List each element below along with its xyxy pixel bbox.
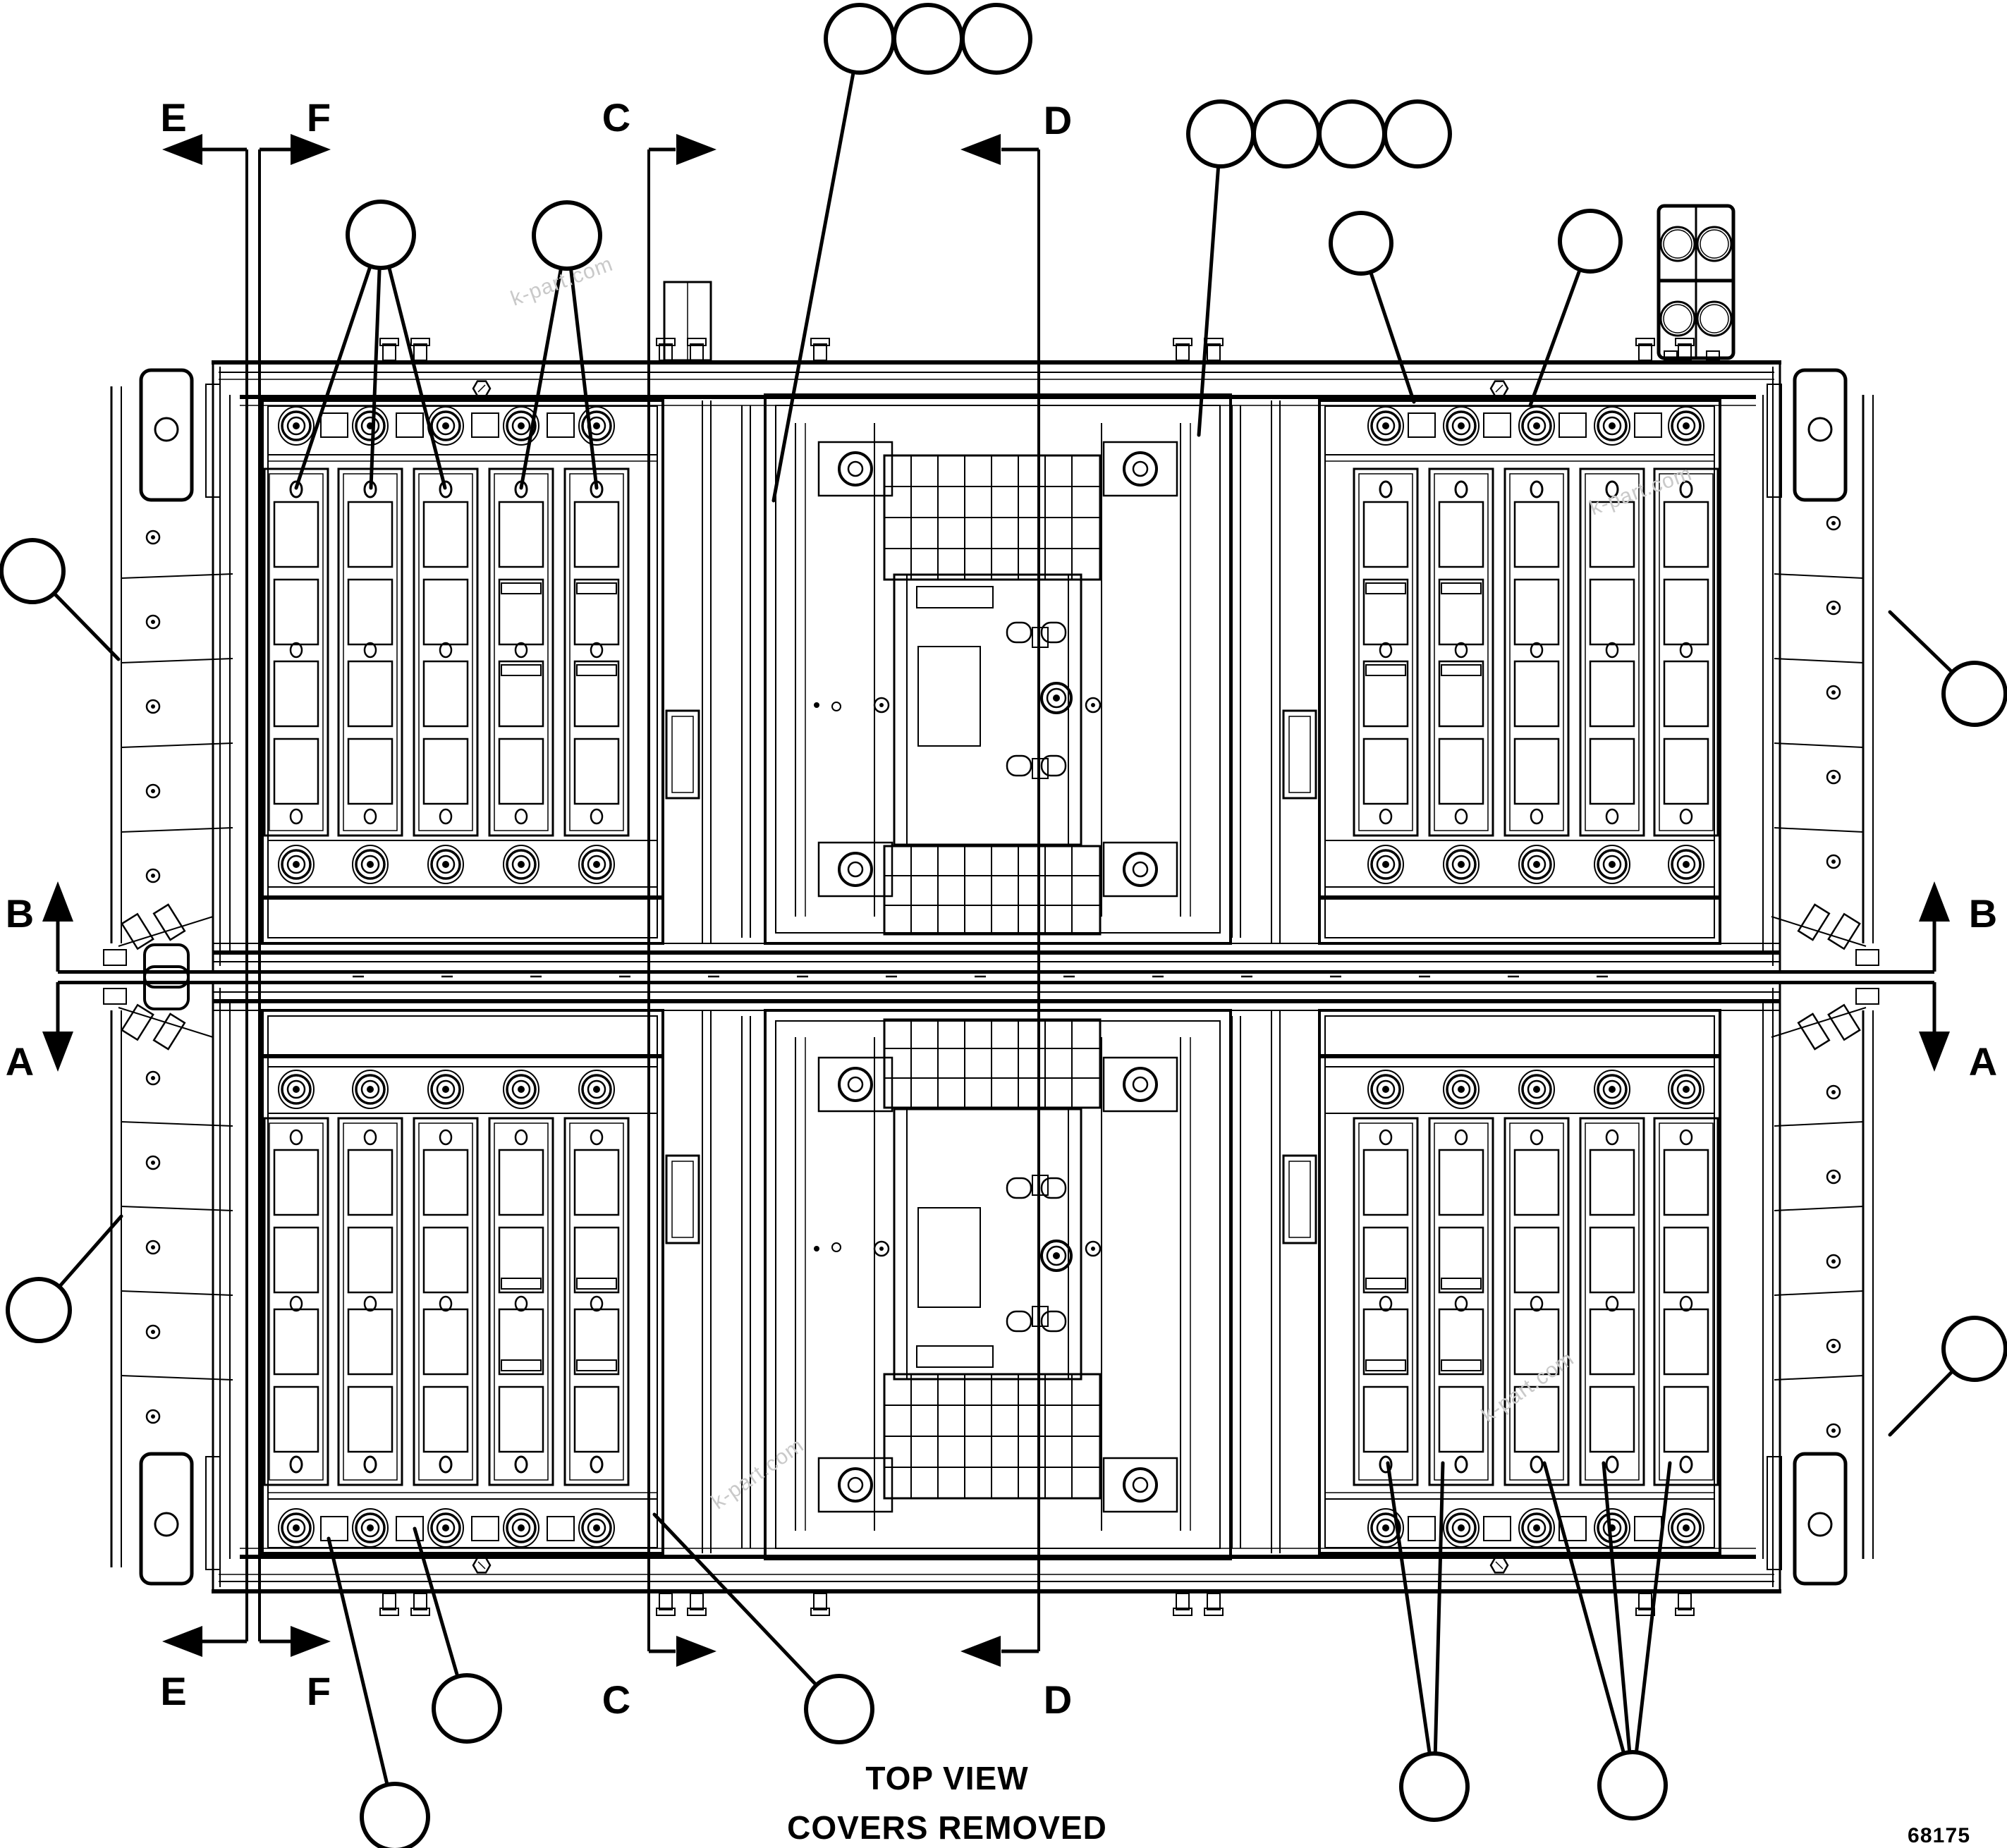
callout-balloon: [826, 5, 893, 73]
callout-balloon: [806, 1676, 872, 1742]
arrow-d-bottom: [960, 1636, 1001, 1667]
callout-balloon: [963, 5, 1030, 73]
section-label-a-left: A: [6, 1039, 34, 1084]
arrow-e-bottom: [162, 1626, 202, 1657]
callout-balloon: [362, 1784, 428, 1848]
lower-half: [104, 967, 1879, 1615]
section-label-f-top: F: [307, 95, 331, 140]
callout-balloon: [1385, 102, 1450, 166]
section-label-f-bottom: F: [307, 1669, 331, 1713]
callout-balloon: [1319, 102, 1384, 166]
section-label-e-top: E: [160, 95, 186, 140]
callout-balloon: [1599, 1752, 1666, 1818]
section-label-e-bottom: E: [160, 1669, 186, 1713]
diagram-canvas: E F C D E F C D B A B A: [0, 0, 2007, 1848]
arrow-c-bottom: [676, 1636, 716, 1667]
section-label-b-right: B: [1969, 891, 1997, 936]
callout-balloon: [1944, 1318, 2006, 1380]
genset-top-view: [104, 206, 1879, 1615]
watermark: k-part.com: [707, 1433, 808, 1514]
callout-balloon: [1, 540, 63, 602]
callout-balloon: [348, 202, 414, 268]
upper-half: [104, 338, 1879, 987]
callout-balloon: [1254, 102, 1319, 166]
callout-balloon: [8, 1279, 70, 1341]
callout-balloon: [434, 1675, 500, 1742]
exhaust-outlet-tower: [1659, 206, 1733, 360]
watermark: k-part.com: [1587, 462, 1695, 520]
arrow-b-left: [42, 881, 73, 922]
callout-balloon: [1560, 211, 1621, 271]
section-markers: E F C D E F C D B A B A: [6, 95, 1997, 1722]
match-line-b: [58, 970, 1934, 974]
callout-balloon: [1331, 213, 1391, 274]
section-label-d-top: D: [1044, 98, 1072, 142]
arrow-a-right: [1919, 1032, 1950, 1072]
section-label-c-bottom: C: [602, 1677, 630, 1722]
arrow-c-top: [676, 134, 716, 165]
match-line-a: [58, 981, 1934, 984]
diagram-page: E F C D E F C D B A B A: [0, 0, 2007, 1848]
view-subtitle: COVERS REMOVED: [787, 1809, 1107, 1846]
arrow-f-bottom: [291, 1626, 331, 1657]
view-title: TOP VIEW: [865, 1760, 1028, 1797]
section-label-d-bottom: D: [1044, 1677, 1072, 1722]
arrow-d-top: [960, 134, 1001, 165]
arrow-a-left: [42, 1032, 73, 1072]
section-label-a-right: A: [1969, 1039, 1997, 1084]
arrow-b-right: [1919, 881, 1950, 922]
callout-balloon: [1401, 1754, 1468, 1820]
callout-balloon: [894, 5, 962, 73]
callout-balloon: [1944, 663, 2006, 725]
callout-balloon: [1188, 102, 1253, 166]
drawing-number: 68175: [1908, 1824, 1969, 1847]
section-label-c-top: C: [602, 95, 630, 140]
section-label-b-left: B: [6, 891, 34, 936]
